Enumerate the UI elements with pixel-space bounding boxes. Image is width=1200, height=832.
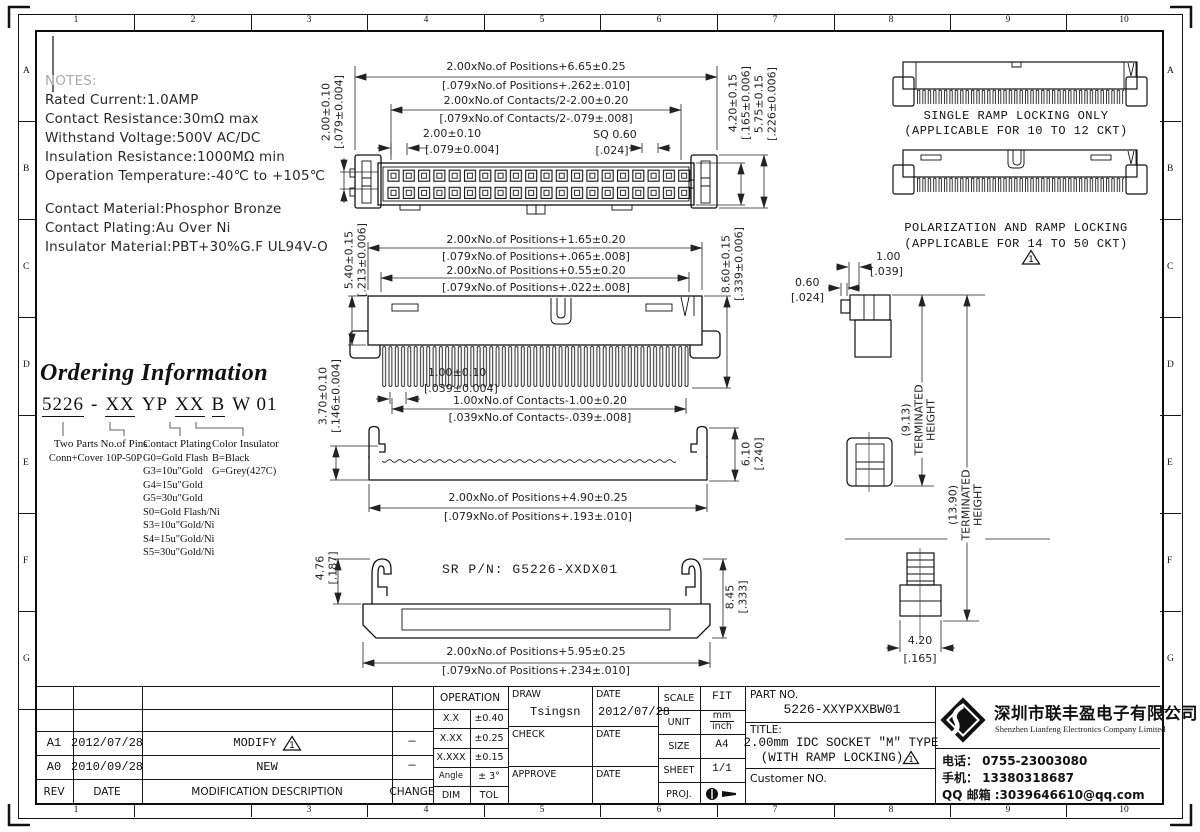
rev-desc: NEW [256, 760, 278, 774]
dim-label-vertical: 4.76[.187] [315, 551, 340, 584]
dim-label: 2.00xNo.of Positions+1.65±0.20 [446, 233, 625, 246]
note-line: Rated Current:1.0AMP [45, 91, 328, 110]
grid-col: 5 [540, 805, 545, 815]
note-line: Contact Material:Phosphor Bronze [45, 200, 328, 219]
rev-change: — [408, 734, 415, 748]
rev-header: DATE [93, 786, 120, 798]
grid-col: 10 [1119, 15, 1129, 25]
dim-label-vertical: 4.20±0.15[.165±0.006] [728, 66, 753, 140]
ordering-col-color: Color Insulator B=Black G=Grey(427C) [212, 438, 279, 479]
note-line: Insulator Material:PBT+30%G.F UL94V-O [45, 238, 328, 257]
dim-label: SQ 0.60 [593, 128, 637, 141]
grid-row: C [1167, 262, 1173, 272]
draw-name: Tsingsn [530, 705, 580, 719]
dim-label: 2.00xNo.of Positions+4.90±0.25 [448, 491, 627, 504]
grid-row: E [1167, 458, 1173, 468]
part-title-line1: 2.00mm IDC SOCKET "M" TYPE [743, 736, 938, 750]
ordering-col-plating: Contact Plating G0=Gold Flash G3=10u"Gol… [143, 438, 220, 560]
grid-row: D [1167, 360, 1174, 370]
grid-col: 1 [74, 15, 79, 25]
ordering-code: 5226-XXYPXXBW 01 [42, 394, 285, 416]
caption-polarization: (APPLICABLE FOR 14 TO 50 CKT) [904, 237, 1127, 251]
sheet-value: 1/1 [712, 763, 732, 775]
dim-label: [.024] [595, 144, 628, 157]
dim-label: 0.60 [795, 276, 820, 289]
grid-col: 3 [307, 15, 312, 25]
part-no-label: PART NO. [750, 689, 798, 701]
revision-triangle-icon: 1 [282, 735, 302, 752]
part-title-line2: (WITH RAMP LOCKING) [761, 751, 904, 765]
grid-col: 5 [540, 15, 545, 25]
caption-polarization: POLARIZATION AND RAMP LOCKING [904, 221, 1127, 235]
rev-id: A0 [47, 760, 61, 774]
note-line: Contact Resistance:30mΩ max [45, 110, 328, 129]
note-line: Operation Temperature:-40℃ to +105℃ [45, 167, 328, 186]
date-label: DATE [596, 689, 621, 700]
grid-col: 6 [657, 15, 662, 25]
grid-col: 4 [424, 805, 429, 815]
grid-col: 9 [1006, 15, 1011, 25]
rev-date: 2010/09/28 [71, 760, 143, 774]
dim-label-vertical: 2.00±0.10[.079±0.004] [321, 75, 346, 149]
grid-col: 9 [1006, 805, 1011, 815]
grid-row: E [23, 458, 29, 468]
grid-row: D [23, 360, 30, 370]
ordering-col-pins: No.of Pins 10P-50P [100, 438, 147, 465]
operation-header: OPERATION [440, 692, 500, 704]
dim-label: 2.00±0.10 [423, 127, 481, 140]
part-no-value: 5226-XXYPXXBW01 [783, 702, 900, 717]
size-value: A4 [715, 739, 728, 751]
dim-label: [.079xNo.of Positions+.262±.010] [442, 79, 630, 92]
company-qq: QQ 邮箱 :3039646610@qq.com [942, 786, 1145, 803]
rev-header: MODIFICATION DESCRIPTION [191, 786, 342, 798]
dim-label: [.024] [791, 291, 824, 304]
rev-header: REV [43, 786, 64, 798]
grid-row: B [1167, 164, 1173, 174]
grid-col: 1 [74, 805, 79, 815]
dim-label-vertical: 5.75±0.15[.226±0.006] [754, 67, 779, 141]
grid-row: F [1167, 556, 1172, 566]
dim-label-vertical: 5.40±0.15[.213±0.006] [344, 223, 369, 297]
dim-label: 2.00xNo.of Positions+6.65±0.25 [446, 60, 625, 73]
dim-label: [.079xNo.of Positions+.022±.008] [442, 281, 630, 294]
dim-label: 4.20 [908, 634, 933, 647]
svg-text:1: 1 [289, 741, 295, 751]
note-line: Contact Plating:Au Over Ni [45, 219, 328, 238]
approve-label: APPROVE [512, 769, 556, 780]
note-line: Withstand Voltage:500V AC/DC [45, 129, 328, 148]
grid-row: G [23, 654, 30, 664]
customer-no-label: Customer NO. [750, 772, 827, 785]
projection-symbol-icon [704, 786, 742, 802]
company-logo [938, 694, 988, 746]
revision-triangle-icon: 1 [902, 750, 920, 765]
grid-col: 4 [424, 15, 429, 25]
rev-change: — [408, 758, 415, 772]
date-label: DATE [596, 729, 621, 740]
grid-col: 8 [889, 15, 894, 25]
code-series: 5226 [42, 394, 84, 417]
notes-heading: NOTES: [45, 72, 328, 91]
dim-label-vertical: 8.60±0.15[.339±0.006] [721, 227, 746, 301]
engineering-drawing-sheet: { "frame": { "top_numbers": ["1","2","3"… [0, 0, 1200, 832]
svg-text:1: 1 [908, 755, 913, 764]
rev-date: 2012/07/28 [71, 736, 143, 750]
grid-row: B [23, 164, 29, 174]
rev-id: A1 [47, 736, 61, 750]
dim-label: [.165] [903, 652, 936, 665]
grid-row: C [23, 262, 29, 272]
dim-label-vertical: 3.70±0.10[.146±0.004] [318, 359, 343, 433]
grid-col: 3 [307, 805, 312, 815]
note-line: Insulation Resistance:1000MΩ min [45, 148, 328, 167]
rev-desc: MODIFY [233, 736, 276, 750]
code-pins: XX [105, 394, 134, 417]
dim-label-vertical: 6.10[.240] [741, 437, 766, 470]
code-plating: XX [175, 394, 204, 417]
rev-header: CHANGE [389, 786, 434, 798]
company-tel: 电话： 0755-23003080 [942, 752, 1087, 769]
grid-row: A [1167, 66, 1174, 76]
grid-col: 6 [657, 805, 662, 815]
grid-col: 2 [191, 15, 196, 25]
dim-label: [.079±0.004] [425, 143, 499, 156]
draw-date: 2012/07/28 [598, 705, 670, 719]
grid-row: G [1167, 654, 1174, 664]
caption-single-ramp: SINGLE RAMP LOCKING ONLY [924, 109, 1109, 123]
notes-block: NOTES: Rated Current:1.0AMP Contact Resi… [45, 72, 328, 257]
unit-value: mm inch [707, 711, 737, 732]
grid-col: 7 [773, 15, 778, 25]
company-mobile: 手机： 13380318687 [942, 769, 1074, 786]
dim-label-vertical: 8.45[.333] [725, 580, 750, 613]
grid-col: 7 [773, 805, 778, 815]
dim-label: 1.00xNo.of Contacts-1.00±0.20 [453, 394, 627, 407]
dim-label: [.079xNo.of Contacts/2-.079±.008] [439, 112, 632, 125]
dim-label: 1.00±0.10 [428, 366, 486, 379]
revision-triangle-icon: 1 [1021, 249, 1041, 266]
dim-label: [.079xNo.of Positions+.065±.008] [442, 250, 630, 263]
title-label: TITLE: [750, 724, 782, 736]
terminated-height-label: (9.13)TERMINATEDHEIGHT [900, 382, 938, 457]
dim-label: 2.00xNo.of Positions+5.95±0.25 [446, 645, 625, 658]
sr-part-number: SR P/N: G5226-XXDX01 [442, 562, 618, 577]
dim-label: [.079xNo.of Positions+.234±.010] [442, 664, 630, 677]
company-name-cn: 深圳市联丰盈电子有限公司 [994, 700, 1198, 724]
dim-label: [.039] [870, 265, 903, 278]
company-name-en: Shenzhen Lianfeng Electronics Company Li… [995, 724, 1165, 734]
ordering-col-two-parts: Two Parts Conn+Cover [49, 438, 103, 465]
code-color: B [212, 394, 226, 417]
dim-label: 2.00xNo.of Positions+0.55±0.20 [446, 264, 625, 277]
draw-label: DRAW [512, 689, 541, 700]
date-label: DATE [596, 769, 621, 780]
dim-label: 1.00 [876, 250, 901, 263]
scale-value: FIT [712, 691, 732, 703]
grid-row: A [23, 66, 30, 76]
check-label: CHECK [512, 729, 545, 740]
dim-label: [.039xNo.of Contacts-.039±.008] [449, 411, 632, 424]
dim-label: 2.00xNo.of Contacts/2-2.00±0.20 [444, 94, 629, 107]
ordering-title: Ordering Information [40, 360, 268, 387]
grid-row: F [23, 556, 28, 566]
grid-col: 10 [1119, 805, 1129, 815]
caption-single-ramp: (APPLICABLE FOR 10 TO 12 CKT) [904, 124, 1127, 138]
svg-text:1: 1 [1028, 255, 1034, 265]
dim-label: [.079xNo.of Positions+.193±.010] [444, 510, 632, 523]
terminated-height-label: (13.90)TERMINATEDHEIGHT [947, 467, 985, 542]
grid-col: 8 [889, 805, 894, 815]
